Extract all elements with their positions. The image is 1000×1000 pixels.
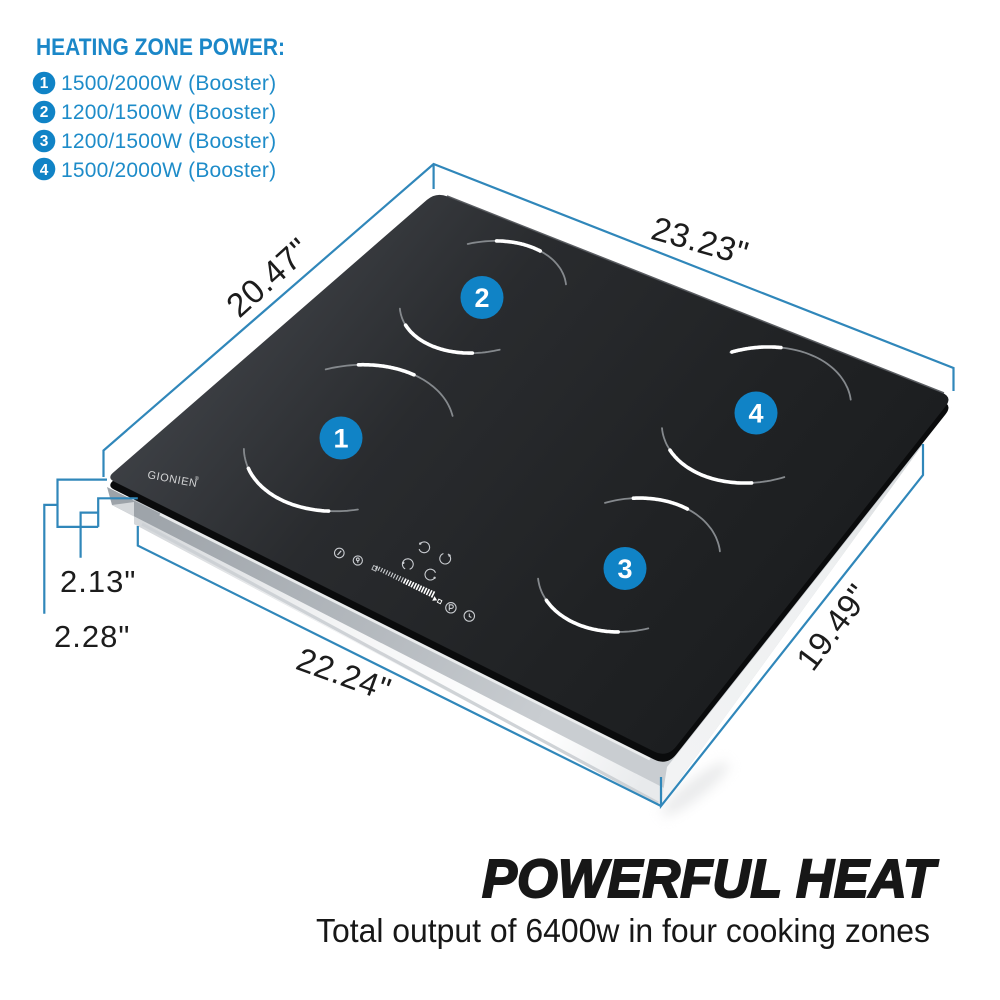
svg-text:2: 2 [40,104,49,121]
svg-text:1: 1 [40,75,49,92]
svg-text:2.13": 2.13" [60,564,136,599]
svg-text:POWERFUL HEAT: POWERFUL HEAT [482,849,939,909]
svg-text:3: 3 [617,554,632,584]
svg-text:1200/1500W (Booster): 1200/1500W (Booster) [61,130,276,153]
svg-text:Total output of 6400w in four: Total output of 6400w in four cooking zo… [316,913,930,950]
svg-text:23.23": 23.23" [647,211,752,274]
svg-text:3: 3 [40,133,49,150]
svg-text:1500/2000W (Booster): 1500/2000W (Booster) [61,72,276,95]
svg-text:4: 4 [40,162,49,179]
svg-text:HEATING ZONE POWER:: HEATING ZONE POWER: [36,34,285,61]
svg-text:1500/2000W (Booster): 1500/2000W (Booster) [61,159,276,182]
svg-text:2: 2 [474,283,489,313]
svg-text:4: 4 [748,399,763,429]
svg-text:2.28": 2.28" [54,619,130,654]
svg-text:1: 1 [333,424,348,454]
svg-text:1200/1500W (Booster): 1200/1500W (Booster) [61,101,276,124]
